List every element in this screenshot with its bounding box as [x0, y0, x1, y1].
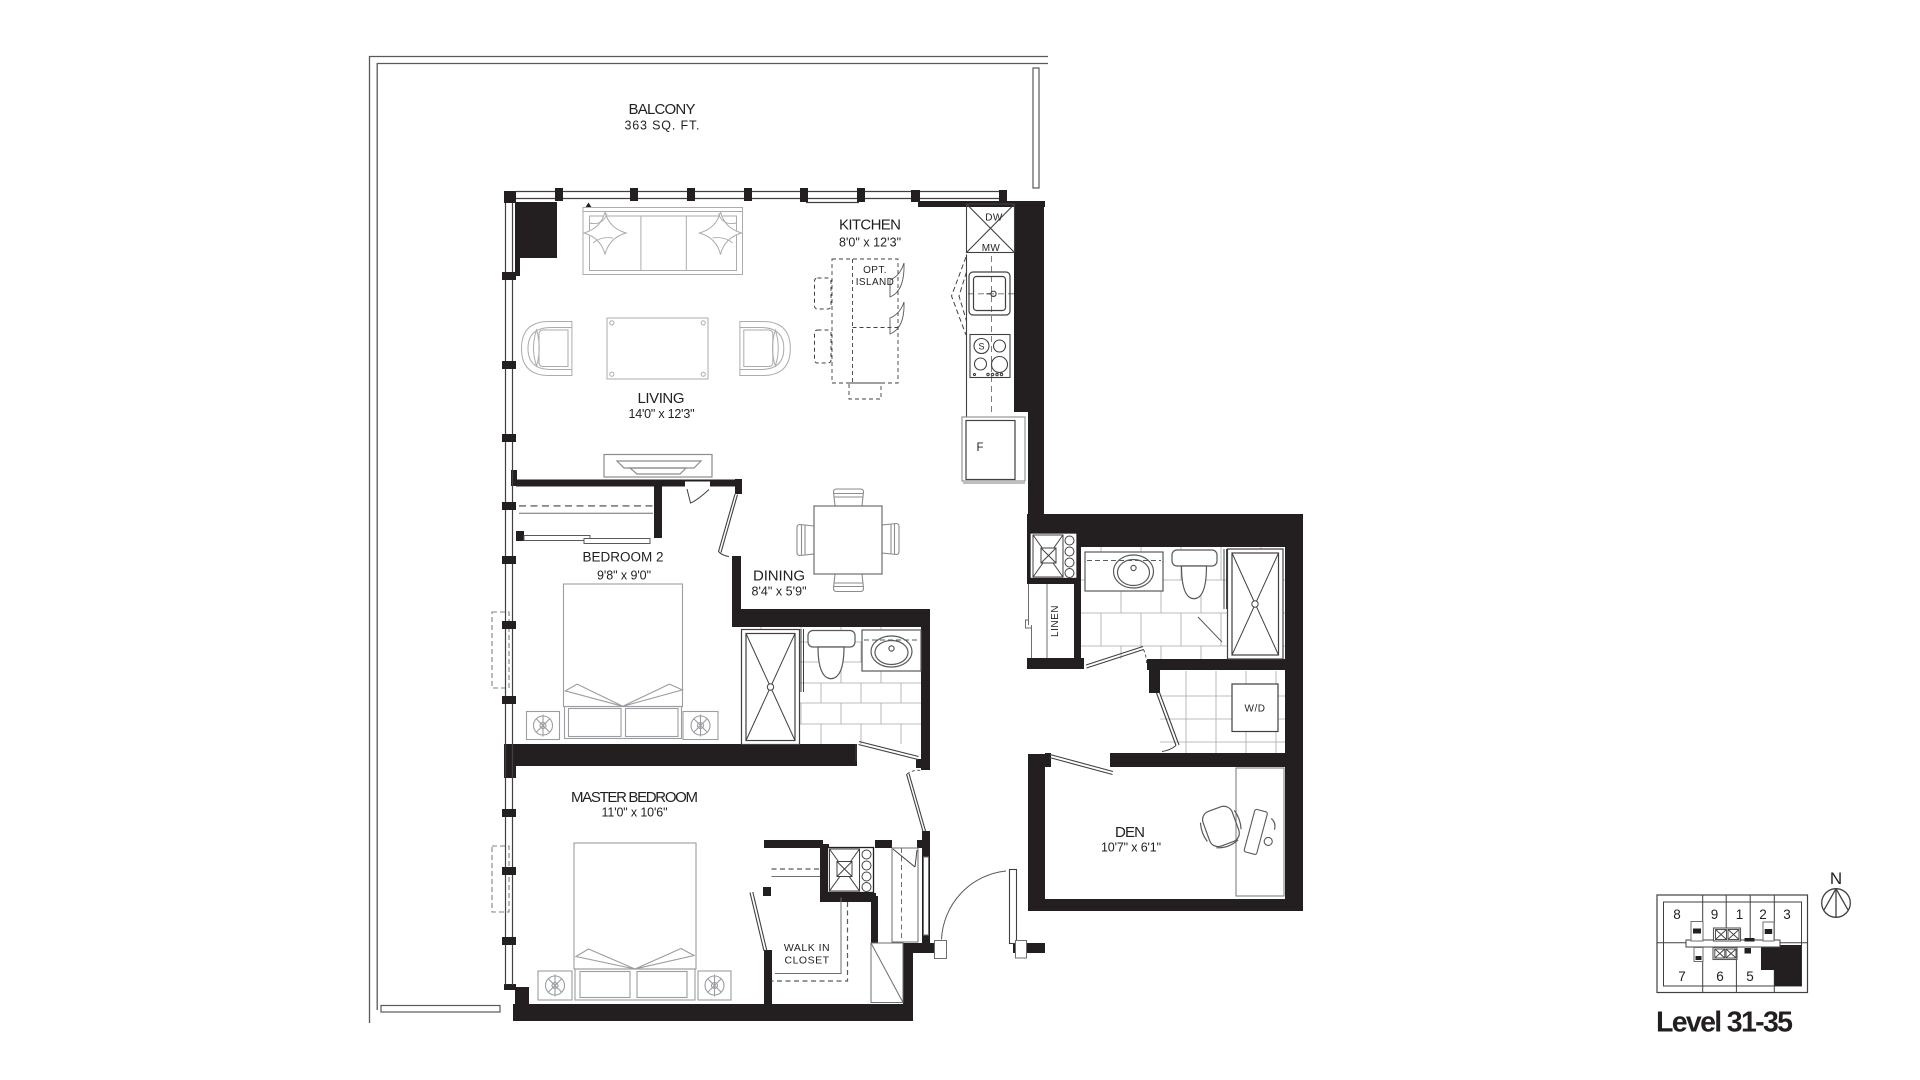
- svg-text:MASTER BEDROOM: MASTER BEDROOM: [571, 789, 698, 806]
- svg-text:1: 1: [1736, 907, 1744, 922]
- svg-text:9: 9: [1711, 907, 1719, 922]
- svg-text:8'4" x 5'9": 8'4" x 5'9": [752, 585, 807, 599]
- svg-text:8: 8: [1673, 907, 1681, 922]
- svg-text:OPT.: OPT.: [863, 265, 887, 276]
- svg-text:9'8" x 9'0": 9'8" x 9'0": [597, 569, 651, 583]
- svg-text:6: 6: [1716, 969, 1724, 984]
- svg-text:10'7" x 6'1": 10'7" x 6'1": [1101, 841, 1161, 855]
- svg-text:LIVING: LIVING: [638, 390, 685, 407]
- svg-text:CLOSET: CLOSET: [784, 955, 829, 967]
- svg-text:MW: MW: [982, 243, 1001, 254]
- svg-text:8'0" x 12'3": 8'0" x 12'3": [839, 236, 901, 250]
- svg-text:WALK IN: WALK IN: [784, 942, 830, 954]
- svg-text:LINEN: LINEN: [1050, 605, 1061, 637]
- svg-text:DINING: DINING: [753, 568, 805, 585]
- svg-text:2: 2: [1759, 907, 1767, 922]
- svg-text:S: S: [978, 342, 984, 352]
- svg-text:7: 7: [1678, 969, 1686, 984]
- svg-text:Level 31-35: Level 31-35: [1656, 1007, 1793, 1039]
- svg-text:3: 3: [1783, 907, 1791, 922]
- svg-text:4: 4: [1784, 969, 1792, 984]
- svg-text:363 SQ. FT.: 363 SQ. FT.: [625, 119, 700, 133]
- svg-text:N: N: [1830, 869, 1842, 888]
- svg-text:BEDROOM 2: BEDROOM 2: [583, 550, 664, 565]
- svg-text:5: 5: [1746, 969, 1754, 984]
- svg-text:W/D: W/D: [1245, 704, 1266, 715]
- svg-text:F: F: [976, 442, 983, 454]
- svg-text:DEN: DEN: [1115, 824, 1145, 841]
- svg-text:DW: DW: [985, 213, 1003, 224]
- svg-text:BALCONY: BALCONY: [629, 101, 696, 118]
- svg-text:KITCHEN: KITCHEN: [839, 217, 901, 234]
- svg-text:14'0" x 12'3": 14'0" x 12'3": [629, 407, 695, 421]
- svg-text:ISLAND: ISLAND: [856, 277, 895, 288]
- svg-text:11'0" x 10'6": 11'0" x 10'6": [602, 806, 668, 820]
